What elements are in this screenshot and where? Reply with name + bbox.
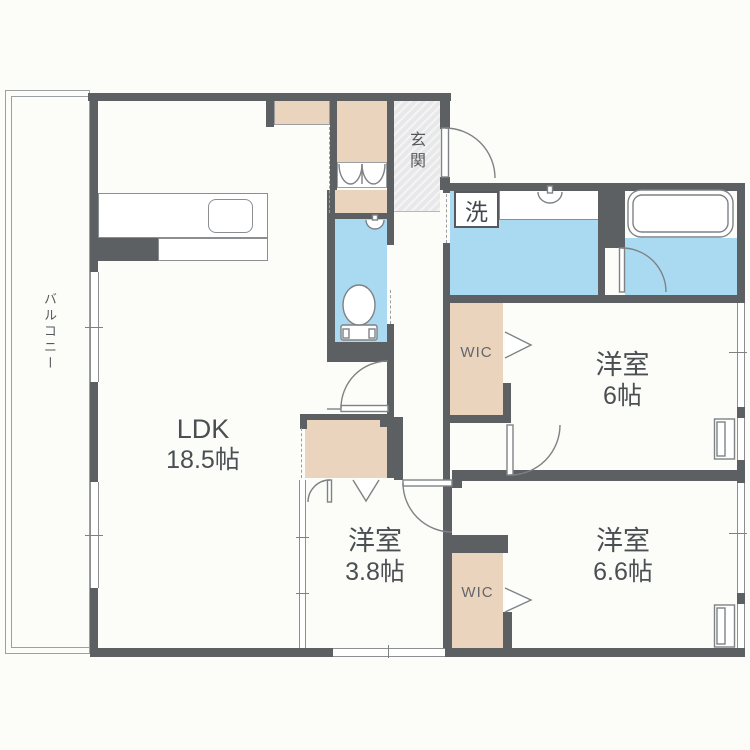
bedroom-c-name: 洋室 <box>302 526 448 558</box>
ldk-name: LDK <box>118 414 288 446</box>
toilet-basin <box>366 220 384 229</box>
toilet-basin-tap <box>373 215 378 220</box>
bedroom-c-area: 3.8帖 <box>302 558 448 588</box>
wic-b-label: WIC <box>451 584 504 601</box>
floor-plan: バルコニー 洗 <box>0 0 750 750</box>
toilet-bowl <box>343 285 375 325</box>
front-door-leaf <box>442 128 449 177</box>
closet-bifold-door <box>353 480 379 501</box>
ldk-area: 18.5帖 <box>118 446 288 476</box>
bathroom-door-leaf <box>620 248 625 292</box>
bedroom-a-area: 6帖 <box>545 382 700 412</box>
toilet-tank-corner <box>369 329 375 338</box>
front-door-swing <box>445 128 495 178</box>
bedroom-a-label: 洋室 6帖 <box>545 350 700 411</box>
bathroom-door-swing <box>622 248 666 292</box>
sliding-window-symbol <box>717 608 725 644</box>
entrance-label: 玄関 <box>403 131 427 173</box>
wic-b-folding-door <box>505 588 531 612</box>
vanity-basin-tap <box>548 186 553 193</box>
bedroom-b-door-swing <box>403 483 452 532</box>
closet-door-swing <box>308 480 330 502</box>
bedroom-b-label: 洋室 6.6帖 <box>543 526 703 587</box>
sliding-window-symbol <box>717 422 725 456</box>
toilet-tank-corner <box>343 329 349 338</box>
bedroom-b-name: 洋室 <box>543 526 703 558</box>
bedroom-b-area: 6.6帖 <box>543 558 703 588</box>
wic-a-folding-door <box>505 332 531 358</box>
bedroom-a-name: 洋室 <box>545 350 700 382</box>
bedroom-a-door-swing <box>510 425 560 475</box>
bathtub-outer <box>628 190 733 237</box>
ldk-label: LDK 18.5帖 <box>118 414 288 475</box>
bedroom-c-label: 洋室 3.8帖 <box>302 526 448 587</box>
ldk-door-leaf <box>341 406 388 412</box>
bedroom-a-door-leaf <box>507 425 513 475</box>
ldk-door-swing <box>341 361 388 408</box>
wic-a-label: WIC <box>450 344 503 361</box>
bedroom-b-door-leaf <box>403 480 452 486</box>
closet-door-leaf <box>328 480 332 502</box>
